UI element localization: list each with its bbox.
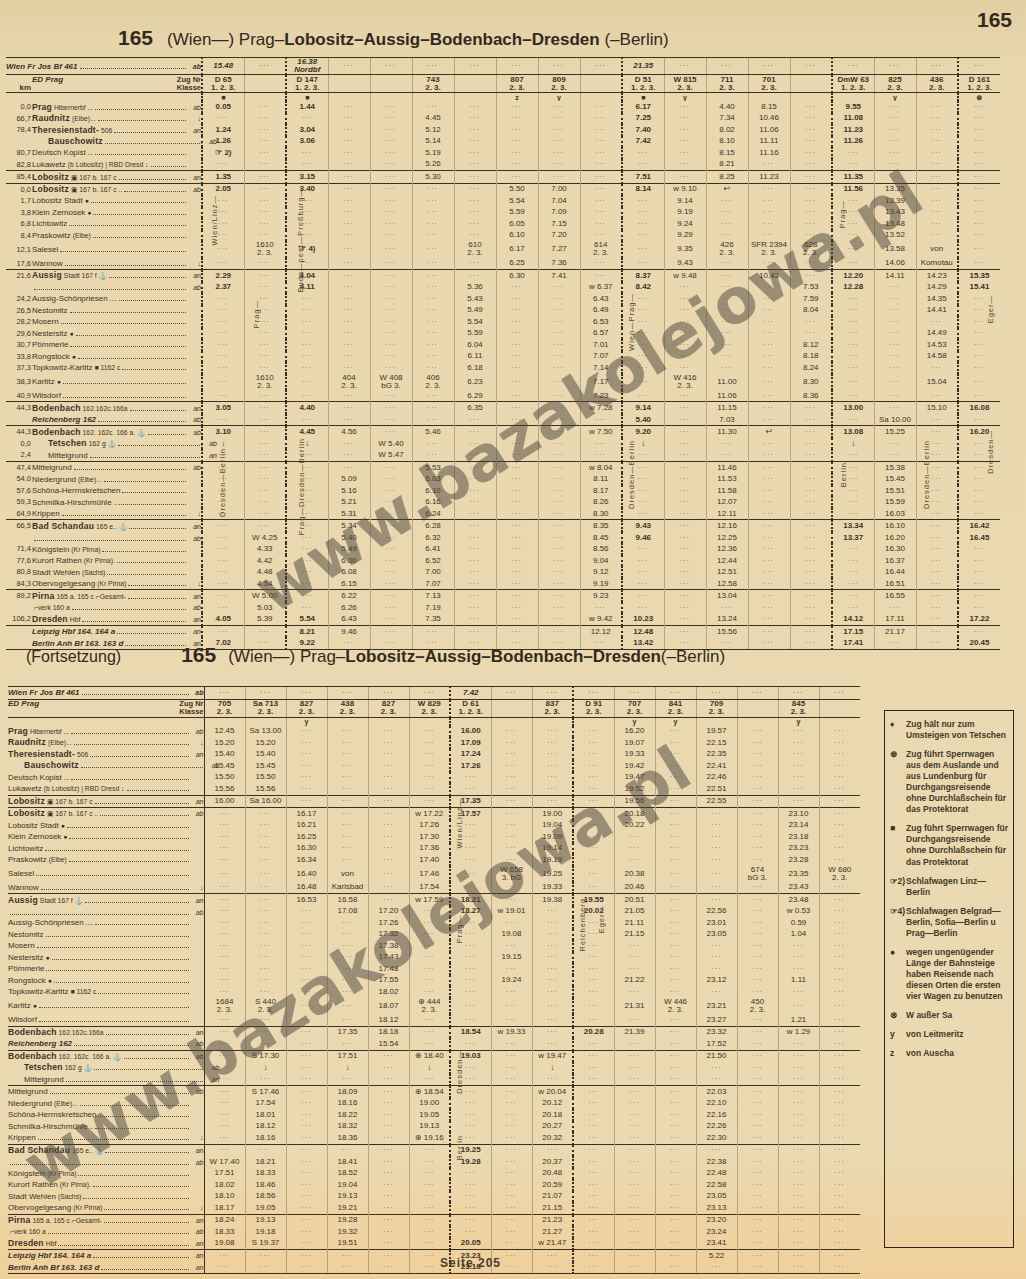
time-cell: ···: [580, 438, 622, 450]
time-cell: ···: [286, 351, 328, 363]
station-cell: Mittelgrundan: [8, 1074, 204, 1086]
time-cell: 6.32: [412, 532, 454, 544]
time-cell: ···: [573, 854, 614, 866]
train-number-cell: 701 2. 3.: [748, 75, 790, 93]
ed-prag-header: ED PragZug Nr Klasse: [32, 75, 202, 93]
footnote-symbol: ■: [890, 823, 906, 867]
time-cell: 8.37: [622, 270, 664, 282]
time-cell: 17.09: [450, 737, 491, 749]
time-cell: ···: [958, 339, 1000, 351]
time-cell: ···: [916, 113, 958, 125]
train-number-cell: [491, 699, 532, 717]
time-cell: ···: [748, 461, 790, 473]
time-cell: ···: [454, 520, 496, 532]
marker-cell: [245, 717, 286, 726]
time-cell: ···: [491, 986, 532, 998]
time-cell: ···: [614, 1050, 655, 1062]
km-cell: 59,3: [6, 496, 32, 508]
time-cell: ···: [204, 843, 245, 855]
time-cell: ···: [819, 795, 860, 808]
time-cell: ···: [202, 258, 244, 270]
time-cell: ···: [454, 590, 496, 602]
train-number-cell: 825 2. 3.: [874, 75, 916, 93]
time-cell: ···: [538, 159, 580, 171]
table-row: 8,4Praskowitz(Elbe)·····················…: [6, 230, 1000, 242]
time-cell: ···: [790, 625, 832, 637]
time-cell: 22.38: [696, 1156, 737, 1168]
time-cell: 21.07: [532, 1191, 573, 1203]
time-cell: 15.40: [245, 749, 286, 761]
time-cell: ···: [409, 940, 450, 952]
wien-time-cell: ···: [538, 58, 580, 75]
time-cell: ···: [748, 159, 790, 171]
train-number-cell: D 147 1. 2. 3.: [286, 75, 328, 93]
station-cell: Theresienstadt-506an: [8, 749, 204, 761]
time-cell: ···: [790, 613, 832, 625]
time-cell: ···: [737, 783, 778, 795]
time-cell: ···: [491, 894, 532, 906]
time-cell: ···: [202, 339, 244, 351]
train-number-cell: 827 2. 3.: [286, 699, 327, 717]
table-row: 44,3Bodenbach162.162c.166aan3.05···4.40·…: [6, 402, 1000, 414]
time-cell: ···: [204, 1109, 245, 1121]
time-cell: ···: [832, 508, 874, 520]
time-cell: ···: [244, 230, 286, 242]
time-cell: 16.10: [874, 520, 916, 532]
time-cell: 19.04: [532, 820, 573, 832]
time-cell: 8.36: [790, 390, 832, 402]
time-cell: ···: [958, 124, 1000, 136]
time-cell: 5.12: [412, 124, 454, 136]
time-cell: ···: [737, 1144, 778, 1156]
time-cell: ···: [370, 390, 412, 402]
time-cell: 12.51: [706, 566, 748, 578]
table-row: 12,1Salesel···1610 2. 3.☞ 4)·········610…: [6, 241, 1000, 257]
time-cell: ···: [748, 218, 790, 230]
time-cell: ···: [538, 520, 580, 532]
time-cell: ···: [286, 1214, 327, 1226]
time-cell: ···: [573, 1062, 614, 1074]
time-cell: 19.19: [532, 854, 573, 866]
table-row: 57,6Schöna-Herrnskretschen·········5.16·…: [6, 485, 1000, 497]
time-cell: ···: [202, 566, 244, 578]
time-cell: ···: [874, 171, 916, 184]
time-cell: ···: [958, 578, 1000, 590]
km-cell: 29,6: [6, 328, 32, 340]
time-cell: ···: [538, 351, 580, 363]
time-cell: 5.03: [244, 602, 286, 614]
km-cell: [6, 625, 32, 637]
table-row: Lukawetz(b Lobositz) | RBD Dresd ↓15.561…: [8, 783, 860, 795]
table-row: 6,8Lichtowitz·····················6.057.…: [6, 218, 1000, 230]
time-cell: 628 2. 3.: [790, 241, 832, 257]
time-cell: 6.41: [412, 543, 454, 555]
time-cell: ···: [328, 124, 370, 136]
station-cell: Mittelgrundan: [32, 449, 202, 461]
marker-cell: y: [664, 93, 706, 102]
time-cell: 19.28: [327, 1214, 368, 1226]
time-cell: ···: [573, 1238, 614, 1250]
time-cell: ···: [244, 362, 286, 374]
time-cell: 6.23: [454, 374, 496, 390]
time-cell: ···: [368, 1179, 409, 1191]
time-cell: ···: [327, 1250, 368, 1262]
time-cell: ···: [328, 282, 370, 294]
time-cell: ···: [958, 473, 1000, 485]
time-cell: 21.27: [532, 1226, 573, 1238]
table-row: Reichenberg 162ab·······················…: [6, 414, 1000, 426]
marker-cell: [370, 93, 412, 102]
time-cell: ···: [286, 1226, 327, 1238]
time-cell: ···: [244, 414, 286, 426]
time-cell: ···: [748, 195, 790, 207]
time-cell: ···: [819, 1086, 860, 1098]
timetable-lower: Wien Fr Jos Bf 461ab··················7.…: [8, 686, 860, 1274]
time-cell: ···: [370, 230, 412, 242]
time-cell: ···: [655, 1109, 696, 1121]
footnote-text: Zug führt Sperrwagen für Durchgangsreise…: [906, 823, 1009, 867]
time-cell: 17.26: [450, 760, 491, 772]
time-cell: ···: [368, 1062, 409, 1074]
time-cell: ···: [409, 795, 450, 808]
time-cell: 15.38: [874, 461, 916, 473]
time-cell: ···: [244, 520, 286, 532]
train-number-cell: DmW 63 1. 2. 3.: [832, 75, 874, 93]
station-cell: Bodenbach162. 162c. 166 a. ⚓ab: [32, 426, 202, 438]
train-number-cell: [328, 75, 370, 93]
station-cell: DresdenHbfan: [32, 613, 202, 625]
time-cell: ···: [286, 1121, 327, 1133]
time-cell: ···: [778, 952, 819, 964]
time-cell: ···: [916, 414, 958, 426]
time-cell: ···: [748, 293, 790, 305]
time-cell: ···: [244, 183, 286, 195]
wien-time-cell: ···: [370, 58, 412, 75]
time-cell: ···: [573, 1250, 614, 1262]
station-cell: Leipzig Hbf 164. 164 aan: [32, 625, 202, 637]
time-cell: ···: [622, 207, 664, 219]
time-cell: 9.19: [580, 578, 622, 590]
station-cell: Kartitz●: [8, 998, 204, 1014]
time-cell: ···: [832, 305, 874, 317]
time-cell: ···: [655, 866, 696, 882]
time-cell: ···: [327, 963, 368, 975]
time-cell: 12.25: [706, 532, 748, 544]
time-cell: ···: [737, 1109, 778, 1121]
time-cell: ···: [368, 1050, 409, 1062]
km-cell: 47,4: [6, 461, 32, 473]
km-cell: 80,8: [6, 566, 32, 578]
time-cell: ···: [655, 749, 696, 761]
time-cell: ···: [409, 1214, 450, 1226]
time-cell: ···: [286, 578, 328, 590]
time-cell: ···: [327, 783, 368, 795]
time-cell: ···: [409, 1074, 450, 1086]
table-row: 106,2DresdenHbfan4.055.395.546.43···7.35…: [6, 613, 1000, 625]
time-cell: ···: [655, 1214, 696, 1226]
time-cell: ···: [819, 1109, 860, 1121]
table-row: Lobositz Stadt●······16.21······17.26···…: [8, 820, 860, 832]
time-cell: ···: [450, 963, 491, 975]
time-cell: ···: [328, 637, 370, 649]
km-cell: 24,2: [6, 293, 32, 305]
time-cell: ···: [874, 282, 916, 294]
time-cell: 13.08: [832, 426, 874, 438]
time-cell: 20.05: [450, 1238, 491, 1250]
time-cell: ···: [655, 1132, 696, 1144]
train-number-cell: W 815 2. 3.: [664, 75, 706, 93]
time-cell: ···: [832, 602, 874, 614]
marker-cell: ■: [622, 93, 664, 102]
time-cell: 13.39: [874, 195, 916, 207]
time-cell: ···: [832, 496, 874, 508]
time-cell: ···: [286, 147, 328, 159]
time-cell: ···: [748, 496, 790, 508]
time-cell: ···: [244, 258, 286, 270]
time-cell: ···: [491, 882, 532, 894]
time-cell: ···: [412, 339, 454, 351]
station-cell: ab: [8, 906, 204, 918]
rotated-route-label: Prag—Dresden—Berlin: [297, 438, 306, 535]
time-cell: 3.40: [286, 183, 328, 195]
table-row: Lichtowitz······16.30······17.36······19…: [8, 843, 860, 855]
time-cell: 9.29: [664, 230, 706, 242]
table-row: 0,0PragHibernerbf ...ab0.05···1.44······…: [6, 101, 1000, 113]
marker-cell: [409, 717, 450, 726]
time-cell: ···: [538, 508, 580, 520]
marker-cell: [748, 93, 790, 102]
time-cell: ···: [409, 1202, 450, 1214]
time-cell: ···: [819, 1144, 860, 1156]
time-cell: ···: [737, 894, 778, 906]
time-cell: 16.51: [874, 578, 916, 590]
time-cell: ···: [832, 414, 874, 426]
wien-time-cell: ···: [496, 58, 538, 75]
time-cell: 13.24: [706, 613, 748, 625]
time-cell: 3.05: [202, 402, 244, 414]
time-cell: ···: [664, 101, 706, 113]
time-cell: ···: [450, 1098, 491, 1110]
time-cell: ···: [737, 1132, 778, 1144]
marker-cell: [204, 717, 245, 726]
time-cell: w 6.37: [580, 282, 622, 294]
time-cell: ···: [538, 414, 580, 426]
time-cell: ···: [748, 625, 790, 637]
time-cell: ···: [737, 820, 778, 832]
time-cell: ···: [655, 1179, 696, 1191]
time-cell: ···: [454, 147, 496, 159]
time-cell: ···: [614, 1014, 655, 1026]
time-cell: ···: [580, 218, 622, 230]
time-cell: ···: [244, 136, 286, 148]
time-cell: 12.07: [706, 496, 748, 508]
train-number-cell: [370, 75, 412, 93]
timetable-grid: Wien Fr Jos Bf 461ab··················7.…: [8, 686, 860, 1274]
time-cell: ···: [450, 1121, 491, 1133]
time-cell: ···: [664, 520, 706, 532]
time-cell: ···: [286, 737, 327, 749]
route-number: 165: [118, 26, 153, 49]
time-cell: ···: [832, 555, 874, 567]
time-cell: ···: [580, 270, 622, 282]
time-cell: ···: [622, 351, 664, 363]
time-cell: 1.21: [778, 1014, 819, 1026]
km-cell: 17,6: [6, 258, 32, 270]
time-cell: 8.14: [622, 183, 664, 195]
time-cell: ···: [622, 543, 664, 555]
time-cell: ···: [958, 113, 1000, 125]
table-row: 37,3Topkowitz-Kartitz■ 1162 c···········…: [6, 362, 1000, 374]
time-cell: 5.31: [328, 508, 370, 520]
time-cell: ···: [874, 101, 916, 113]
time-cell: ···: [874, 159, 916, 171]
time-cell: ···: [580, 113, 622, 125]
time-cell: ···: [706, 293, 748, 305]
table-row: ⌐verk 160 aab18.3319.18···19.32·········…: [8, 1226, 860, 1238]
time-cell: ···: [819, 1098, 860, 1110]
time-cell: S 17.30: [245, 1050, 286, 1062]
time-cell: 22.03: [696, 1086, 737, 1098]
time-cell: ···: [916, 390, 958, 402]
station-cell: Schöna-Herrnskretschen: [8, 1109, 204, 1121]
time-cell: 18.21: [245, 1156, 286, 1168]
time-cell: 21.50: [696, 1050, 737, 1062]
time-cell: ···: [664, 473, 706, 485]
station-cell: Bodenbach162. 162c. 166 a. ⚓ab: [8, 1050, 204, 1062]
time-cell: 16.44: [874, 566, 916, 578]
time-cell: ···: [573, 998, 614, 1014]
time-cell: ···: [790, 230, 832, 242]
time-cell: 15.56: [245, 783, 286, 795]
time-cell: ···: [748, 351, 790, 363]
time-cell: ···: [664, 496, 706, 508]
time-cell: 1.24: [202, 124, 244, 136]
time-cell: ···: [614, 1109, 655, 1121]
time-cell: ···: [958, 207, 1000, 219]
time-cell: ···: [370, 520, 412, 532]
time-cell: 14.58: [916, 351, 958, 363]
time-cell: Komotau: [916, 258, 958, 270]
time-cell: ···: [450, 1168, 491, 1180]
time-cell: ···: [286, 520, 328, 532]
time-cell: ···: [614, 831, 655, 843]
time-cell: 6.52: [412, 555, 454, 567]
time-cell: 1.35: [202, 171, 244, 184]
table-row: 80,7Deutsch Kopist...☞ 2)············5.1…: [6, 147, 1000, 159]
time-cell: ···: [454, 508, 496, 520]
time-cell: 23.12: [696, 975, 737, 987]
time-cell: ···: [496, 374, 538, 390]
time-cell: w 0.53: [778, 906, 819, 918]
time-cell: ···: [737, 1156, 778, 1168]
time-cell: 19.05: [245, 1202, 286, 1214]
time-cell: ···: [614, 1191, 655, 1203]
time-cell: 11.11: [748, 136, 790, 148]
time-cell: 5.26: [412, 159, 454, 171]
timetable-grid: Wien Fr Jos Bf 461ab15.48···16.38 Nordbf…: [6, 57, 1000, 650]
time-cell: ···: [412, 218, 454, 230]
time-cell: ···: [916, 195, 958, 207]
time-cell: ···: [916, 578, 958, 590]
time-cell: ···: [450, 986, 491, 998]
time-cell: ···: [573, 986, 614, 998]
time-cell: ···: [614, 1214, 655, 1226]
km-cell: 1,7: [6, 195, 32, 207]
time-cell: W 5.00: [244, 590, 286, 602]
time-cell: ···: [370, 461, 412, 473]
time-cell: 18.22: [327, 1109, 368, 1121]
marker-cell: [832, 93, 874, 102]
time-cell: ···: [286, 508, 328, 520]
time-cell: 19.07: [614, 737, 655, 749]
time-cell: ···: [368, 1250, 409, 1262]
table-row: ⌐verk 160 aab···5.03···6.26···7.19······…: [6, 602, 1000, 614]
time-cell: ···: [496, 496, 538, 508]
km-cell: 33,8: [6, 351, 32, 363]
station-cell: DresdenHbfan: [8, 1238, 204, 1250]
time-cell: ···: [450, 783, 491, 795]
time-cell: ···: [204, 963, 245, 975]
time-cell: 1.04: [778, 929, 819, 941]
time-cell: ···: [454, 230, 496, 242]
time-cell: ···: [244, 485, 286, 497]
time-cell: ···: [491, 726, 532, 738]
time-cell: ···: [491, 1168, 532, 1180]
time-cell: ···: [573, 1132, 614, 1144]
footnote-item: ■Zug führt Sperrwagen für Durchgangsreis…: [890, 823, 1009, 867]
table-row: 66,7Raudnitz(Elbe)...↓···············4.4…: [6, 113, 1000, 125]
time-cell: 1610 2. 3.: [244, 374, 286, 390]
time-cell: ···: [748, 508, 790, 520]
footnote-item: ♦Zug hält nur zum Umsteigen von Tetschen: [890, 719, 1009, 741]
time-cell: 12.16: [706, 520, 748, 532]
time-cell: 9.46: [328, 625, 370, 637]
train-number-cell: [790, 75, 832, 93]
time-cell: ↓: [286, 438, 328, 450]
time-cell: ···: [202, 578, 244, 590]
time-cell: ···: [202, 390, 244, 402]
time-cell: ···: [454, 218, 496, 230]
time-cell: ···: [614, 1168, 655, 1180]
station-cell: Mosern: [8, 940, 204, 952]
time-cell: 6.24: [412, 508, 454, 520]
km-cell: 6,8: [6, 218, 32, 230]
time-cell: 14.06: [874, 258, 916, 270]
time-cell: ···: [737, 1038, 778, 1050]
time-cell: ···: [328, 305, 370, 317]
table-row: Pömmerle············17.48···············…: [8, 963, 860, 975]
time-cell: ···: [737, 854, 778, 866]
time-cell: 23.32: [696, 1026, 737, 1038]
time-cell: 9.35: [664, 241, 706, 257]
time-cell: ···: [454, 426, 496, 438]
time-cell: ···: [874, 328, 916, 340]
time-cell: ···: [778, 1238, 819, 1250]
train-number-cell: D 61 1. 2. 3.: [450, 699, 491, 717]
time-cell: ···: [286, 305, 328, 317]
time-cell: ···: [286, 159, 328, 171]
rotated-route-label: Dresden—Berlin: [218, 448, 227, 517]
km-cell: 0,0: [6, 183, 32, 195]
km-cell: [6, 282, 32, 294]
time-cell: 11.58: [706, 485, 748, 497]
time-cell: ···: [580, 230, 622, 242]
station-cell: Schmilka-Hirschmühle..: [32, 496, 202, 508]
time-cell: ···: [778, 1179, 819, 1191]
time-cell: ···: [622, 555, 664, 567]
time-cell: ···: [790, 136, 832, 148]
time-cell: ···: [286, 414, 328, 426]
